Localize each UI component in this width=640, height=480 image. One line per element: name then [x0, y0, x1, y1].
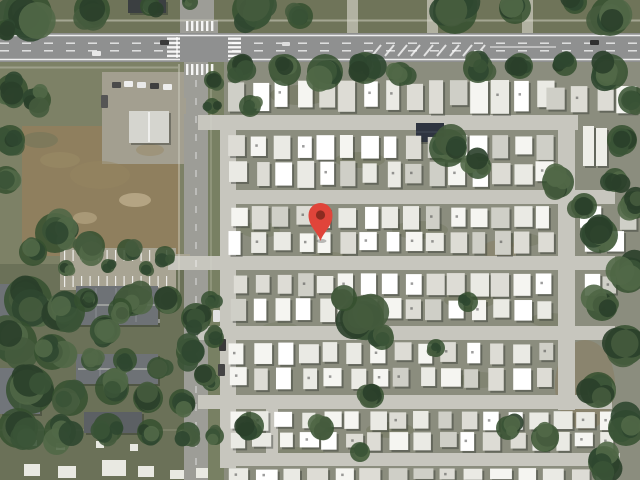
satellite-imagery: [0, 0, 640, 480]
pin-shadow: [317, 239, 327, 243]
pin-center-dot: [316, 210, 325, 219]
map-canvas[interactable]: [0, 0, 640, 480]
